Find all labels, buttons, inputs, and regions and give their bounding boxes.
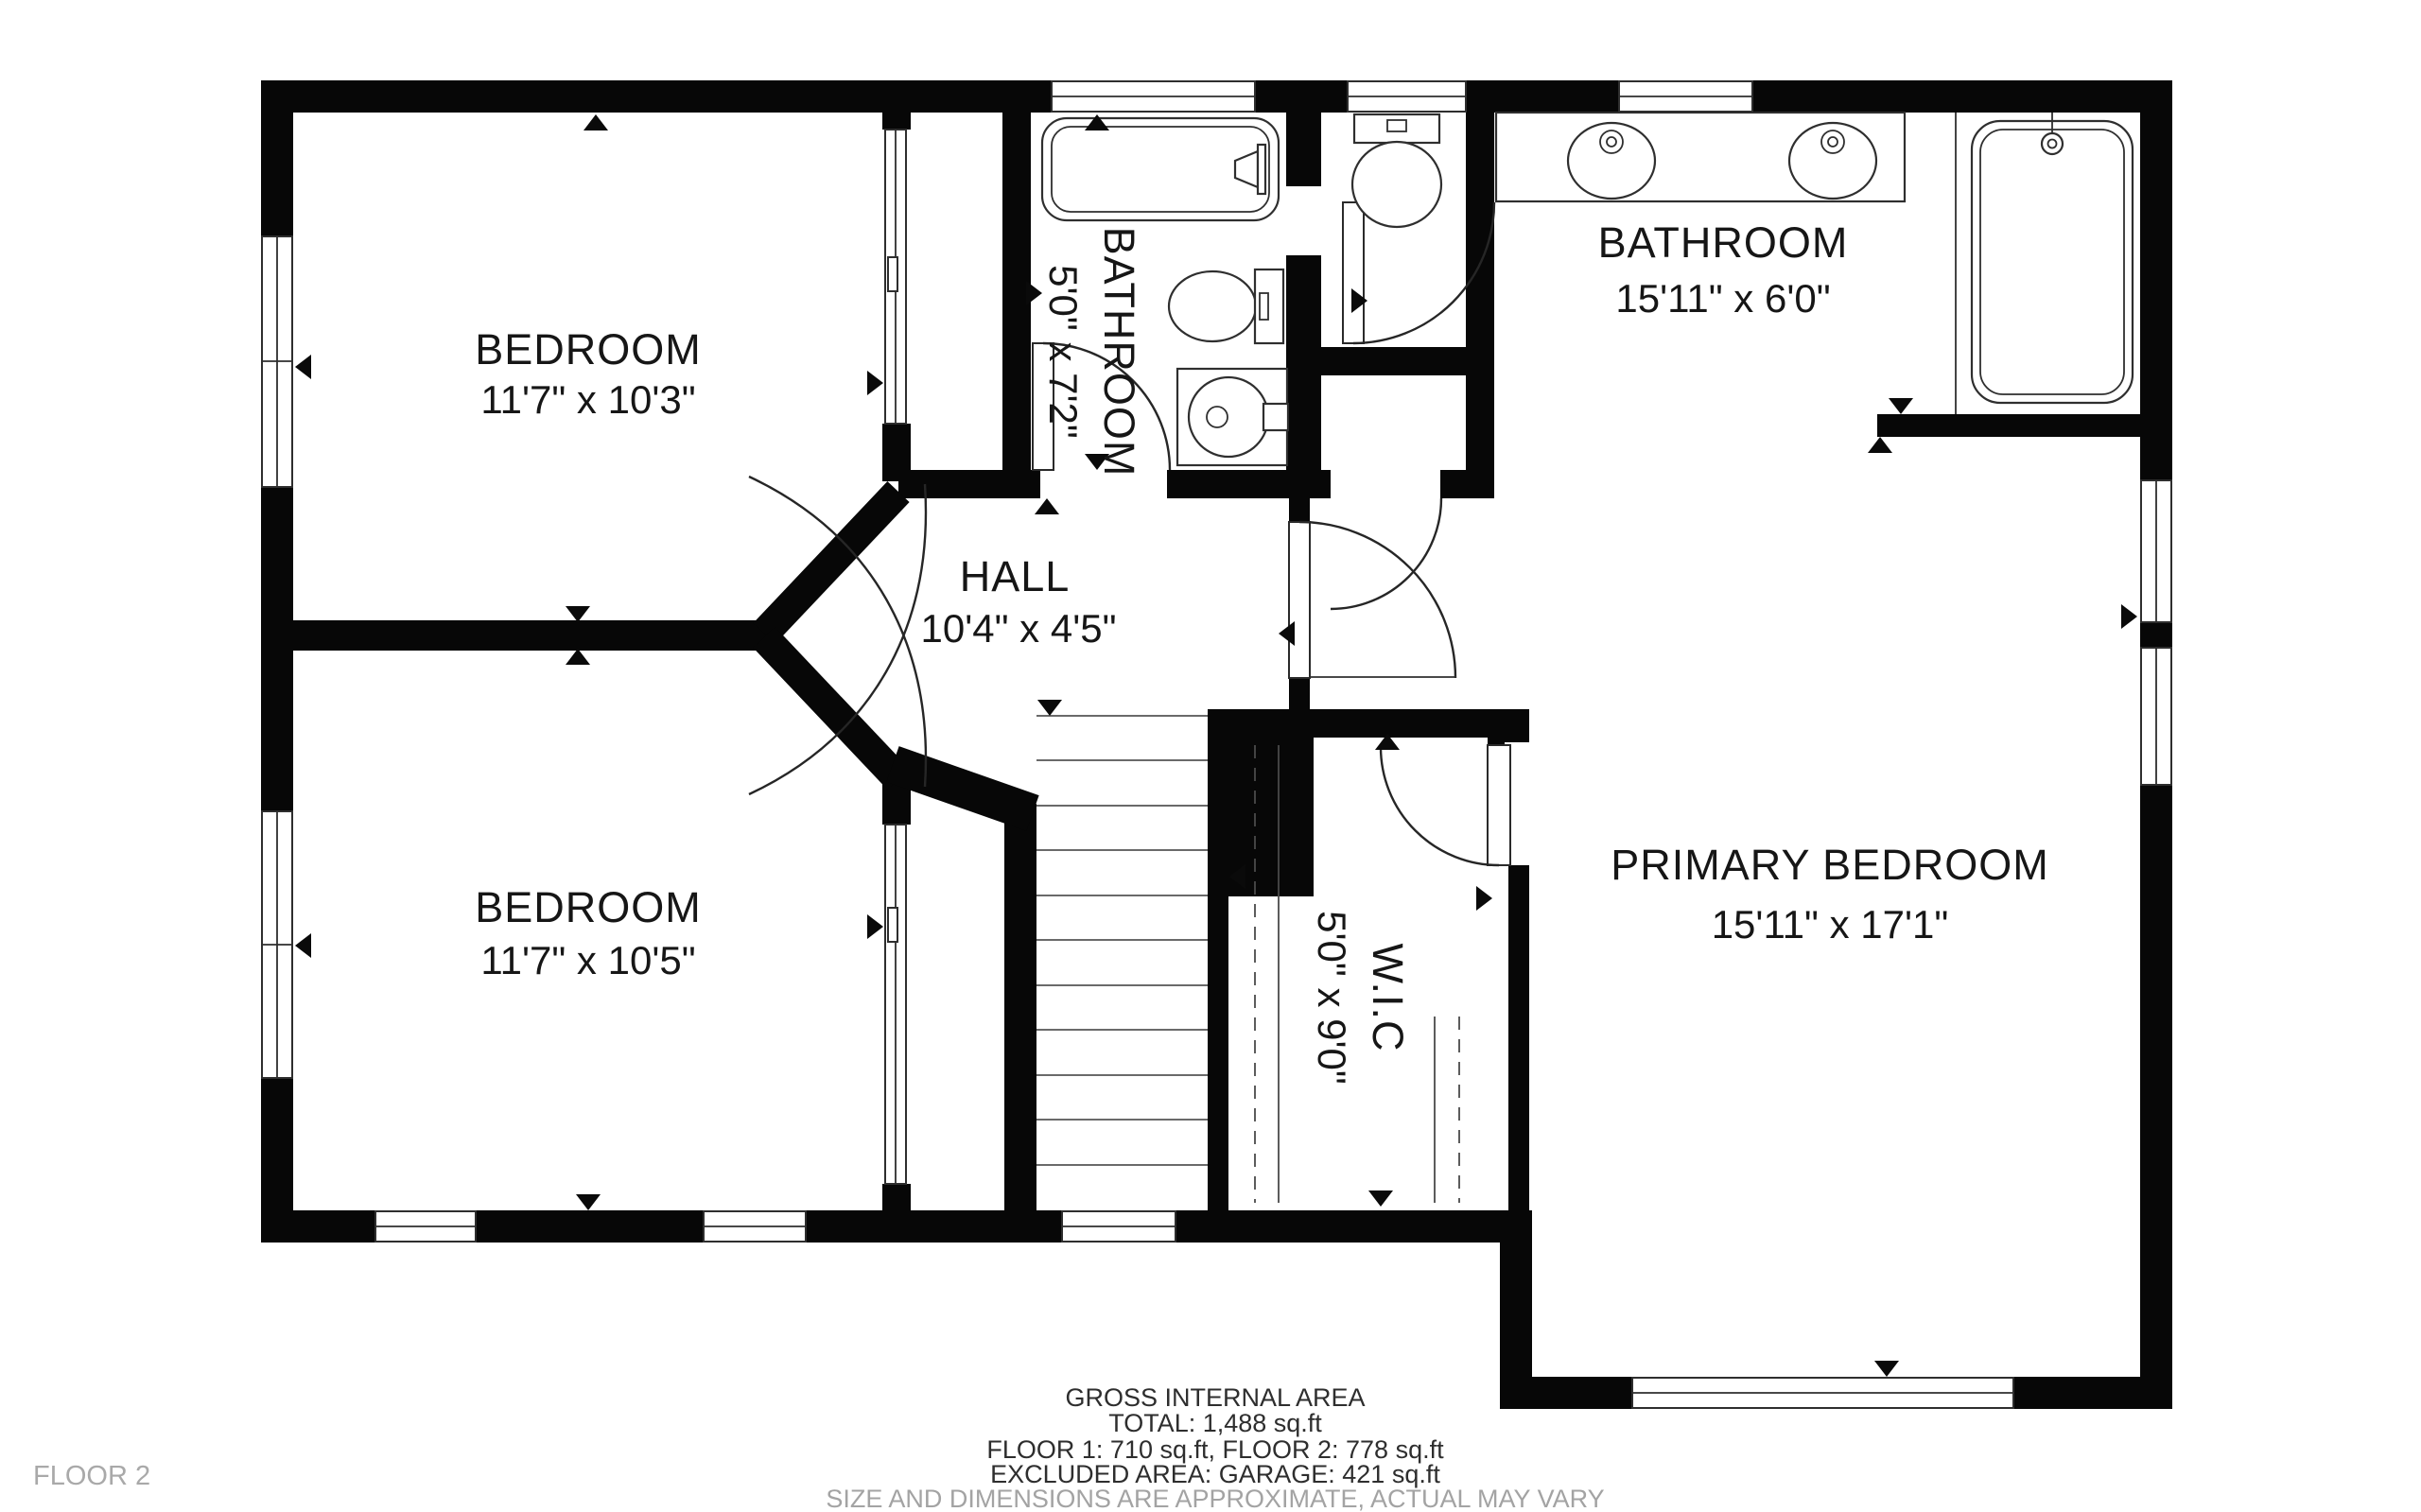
wall-wic-right-stub	[1488, 709, 1529, 744]
area-summary: GROSS INTERNAL AREA TOTAL: 1,488 sq.ft F…	[826, 1383, 1604, 1512]
marker-icon	[576, 1194, 601, 1210]
shower-tub-icon	[1956, 113, 2133, 414]
window-bath-small-top	[1052, 81, 1255, 112]
room-label-hall: HALL	[960, 552, 1071, 600]
wall-stair-chunk	[1208, 709, 1314, 896]
wall-wic-top	[1314, 709, 1508, 738]
wall-stair-right	[1208, 896, 1228, 1210]
room-label-bathroom-main: BATHROOM	[1598, 218, 1849, 267]
room-dims-primary: 15'11" x 17'1"	[1712, 902, 1949, 947]
summary-title: GROSS INTERNAL AREA	[1065, 1383, 1365, 1412]
wall-cap-b1-top	[882, 113, 911, 130]
opening-closet-door	[1331, 468, 1440, 500]
wall-bath-main-bottom	[1877, 414, 2140, 437]
room-dims-hall: 10'4" x 4'5"	[921, 606, 1117, 651]
window-primary-right-b	[2141, 648, 2171, 785]
window-primary-right-a	[2141, 480, 2171, 622]
wall-vestibule-stub-top	[1289, 498, 1310, 522]
fixtures	[1042, 113, 2133, 465]
floor-plan-page: BEDROOM 11'7" x 10'3" BATHROOM 5'0" x 7'…	[0, 0, 2421, 1512]
room-label-bedroom2: BEDROOM	[475, 883, 702, 931]
marker-icon	[295, 933, 311, 958]
room-dims-bedroom2: 11'7" x 10'5"	[480, 938, 695, 982]
wall-hall-angled-lower	[764, 637, 898, 779]
summary-disclaimer: SIZE AND DIMENSIONS ARE APPROXIMATE, ACT…	[826, 1485, 1604, 1512]
room-dims-bathroom-small: 5'0" x 7'2"	[1041, 265, 1086, 439]
room-labels: BEDROOM 11'7" x 10'3" BATHROOM 5'0" x 7'…	[475, 218, 2048, 1085]
room-dims-bathroom-main: 15'11" x 6'0"	[1615, 276, 1830, 321]
marker-icon	[566, 649, 590, 665]
marker-icon	[867, 914, 883, 939]
marker-icon	[1026, 281, 1042, 305]
room-dims-wic: 5'0" x 9'0"	[1310, 911, 1354, 1085]
wall-wc-bottom	[1321, 347, 1466, 375]
room-label-primary: PRIMARY BEDROOM	[1611, 841, 2048, 889]
double-vanity-icon	[1496, 113, 1905, 201]
window-wc-top	[1348, 81, 1466, 112]
window-bedroom2-bottom-a	[375, 1211, 476, 1242]
interior-channel-bedroom1	[885, 130, 906, 424]
bathtub-icon	[1042, 118, 1279, 220]
window-primary-bottom	[1632, 1378, 2013, 1408]
room-label-wic: W.I.C	[1364, 944, 1412, 1052]
wall-hall-angled-upper	[764, 492, 898, 634]
toilet2-icon	[1352, 114, 1441, 227]
wall-bedroom-divider	[261, 620, 771, 651]
wall-bath-small-right	[1286, 113, 1321, 498]
marker-icon	[1279, 621, 1295, 646]
interior-channel-bedroom2	[885, 825, 906, 1184]
window-stairwell-bottom	[1062, 1211, 1176, 1242]
marker-icon	[1368, 1190, 1393, 1207]
marker-icon	[1037, 700, 1062, 716]
marker-icon	[2121, 604, 2137, 629]
opening-wc-door	[1284, 186, 1323, 255]
marker-icon	[867, 371, 883, 395]
marker-icon	[566, 606, 590, 622]
door-wic	[1381, 745, 1510, 865]
wall-cap-b1-bottom	[882, 424, 911, 481]
staircase	[1036, 716, 1208, 1165]
room-label-bedroom1: BEDROOM	[475, 325, 702, 374]
floor-label: FLOOR 2	[33, 1461, 150, 1491]
window-bath-main-top	[1619, 81, 1752, 112]
toilet-icon	[1169, 269, 1283, 343]
floor-plan-canvas: BEDROOM 11'7" x 10'3" BATHROOM 5'0" x 7'…	[0, 0, 2421, 1512]
marker-icon	[1868, 437, 1892, 453]
window-bedroom1-left	[262, 236, 292, 487]
window-bedroom2-bottom-b	[704, 1211, 806, 1242]
summary-total: TOTAL: 1,488 sq.ft	[1108, 1409, 1322, 1437]
wall-stair-elbow	[893, 764, 1033, 813]
room-dims-bedroom1: 11'7" x 10'3"	[480, 377, 695, 422]
door-linen-closet	[1331, 498, 1441, 609]
window-bedroom2-left	[262, 811, 292, 1078]
room-label-bathroom-small: BATHROOM	[1095, 227, 1143, 478]
wall-wic-right	[1508, 863, 1529, 1210]
marker-icon	[295, 355, 311, 379]
marker-icon	[583, 114, 608, 130]
wall-stair-left	[1004, 804, 1036, 1210]
marker-icon	[1476, 886, 1492, 911]
wall-wc-right	[1466, 113, 1494, 498]
marker-icon	[1874, 1361, 1899, 1377]
marker-icon	[1035, 498, 1059, 514]
marker-icon	[1889, 398, 1913, 414]
wall-cap-b2-bottom	[882, 1184, 911, 1210]
pedestal-sink-icon	[1177, 369, 1288, 465]
